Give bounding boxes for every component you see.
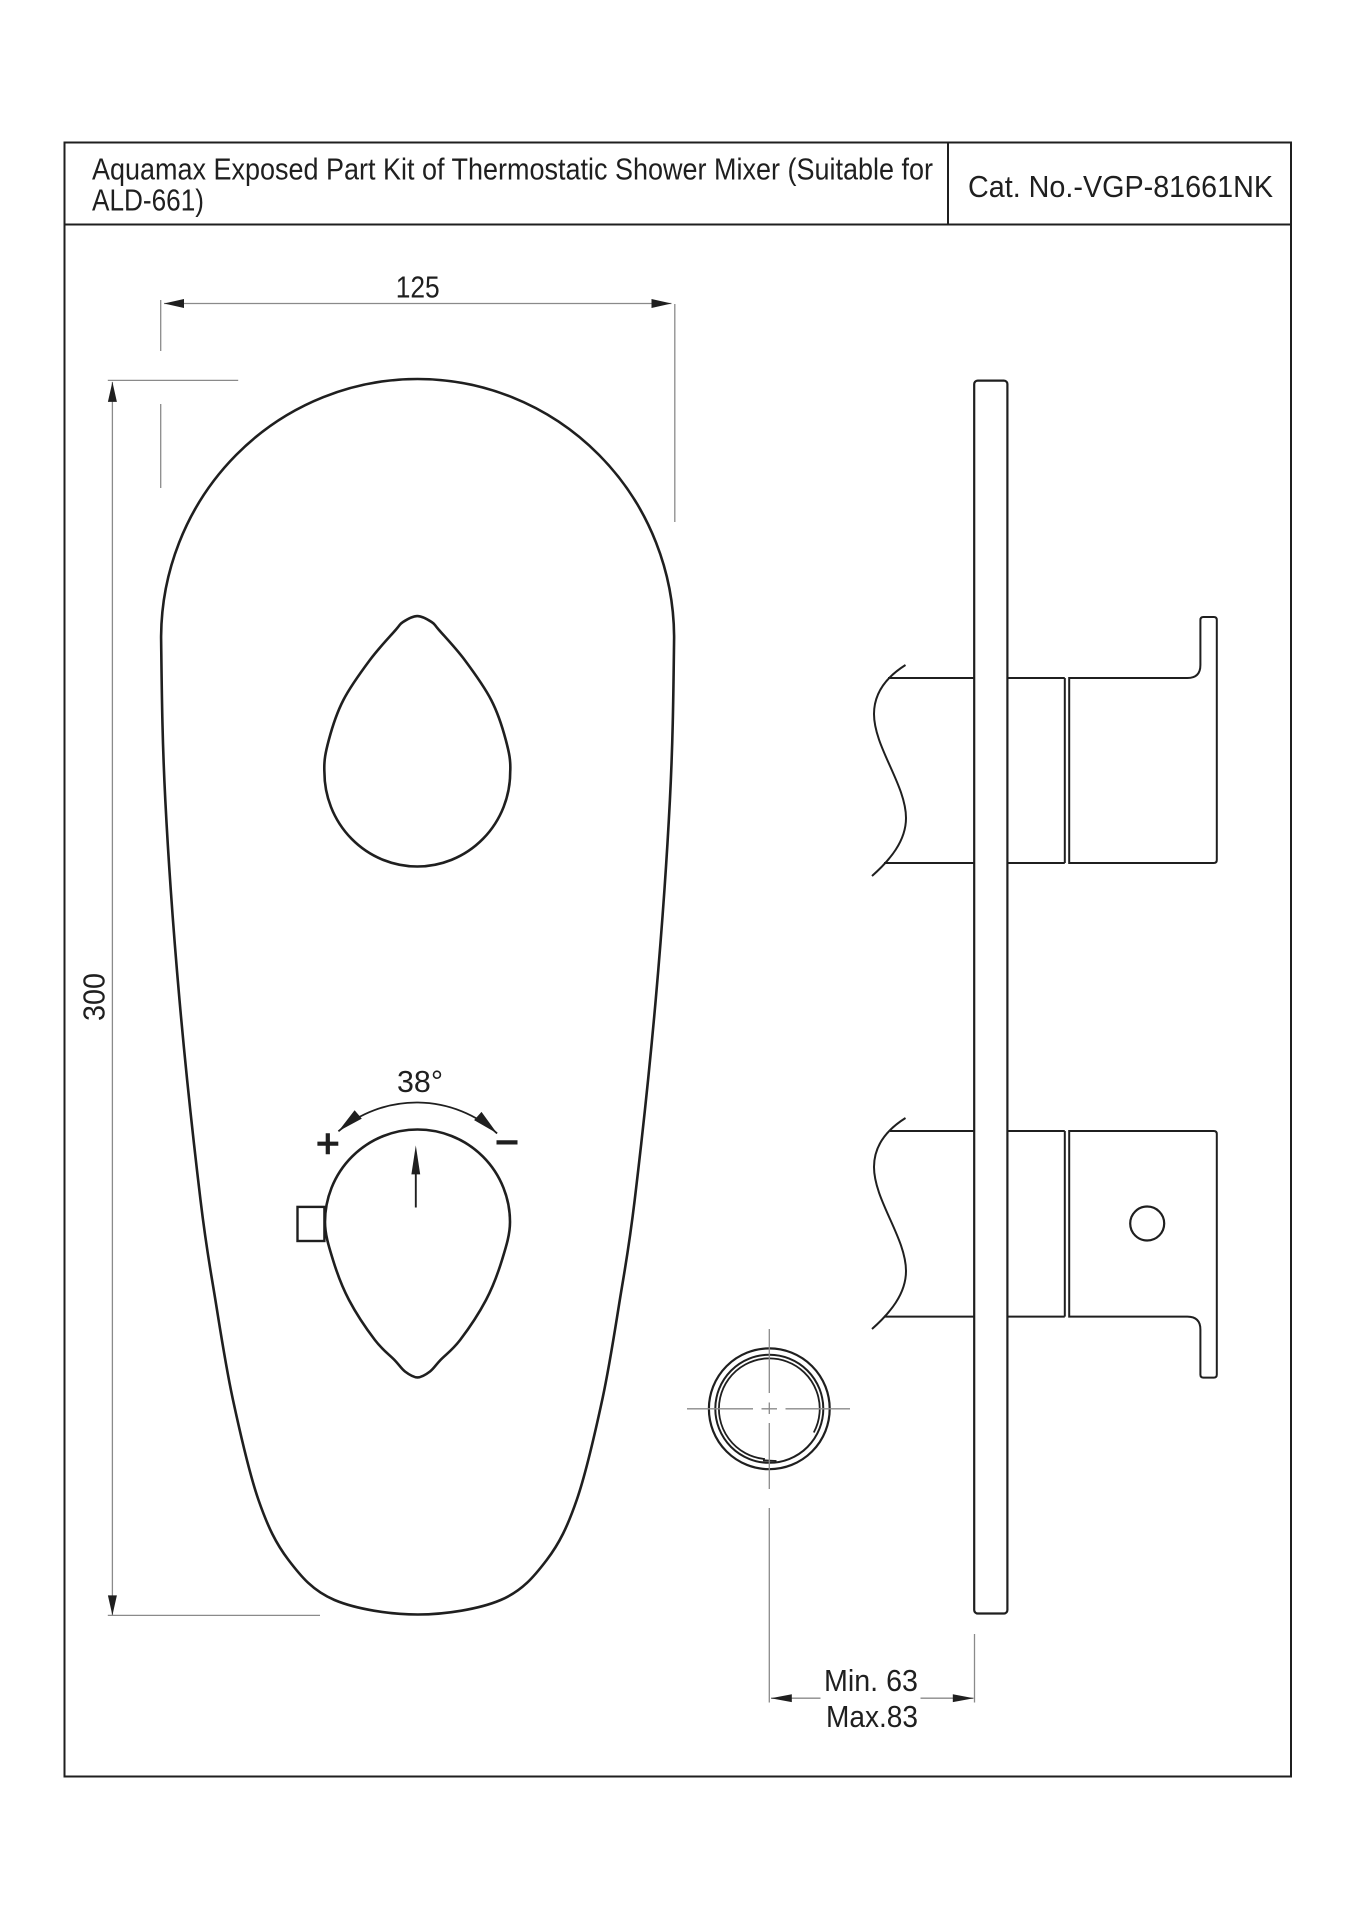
svg-text:125: 125	[396, 270, 440, 305]
svg-text:ALD-661): ALD-661)	[92, 183, 204, 218]
svg-text:Cat. No.-VGP-81661NK: Cat. No.-VGP-81661NK	[968, 169, 1273, 204]
svg-text:38°: 38°	[397, 1064, 443, 1099]
svg-text:300: 300	[77, 973, 112, 1021]
svg-text:Aquamax Exposed Part Kit of Th: Aquamax Exposed Part Kit of Thermostatic…	[92, 152, 933, 187]
svg-text:Min. 63: Min. 63	[824, 1663, 918, 1698]
svg-text:Max.83: Max.83	[826, 1699, 918, 1734]
